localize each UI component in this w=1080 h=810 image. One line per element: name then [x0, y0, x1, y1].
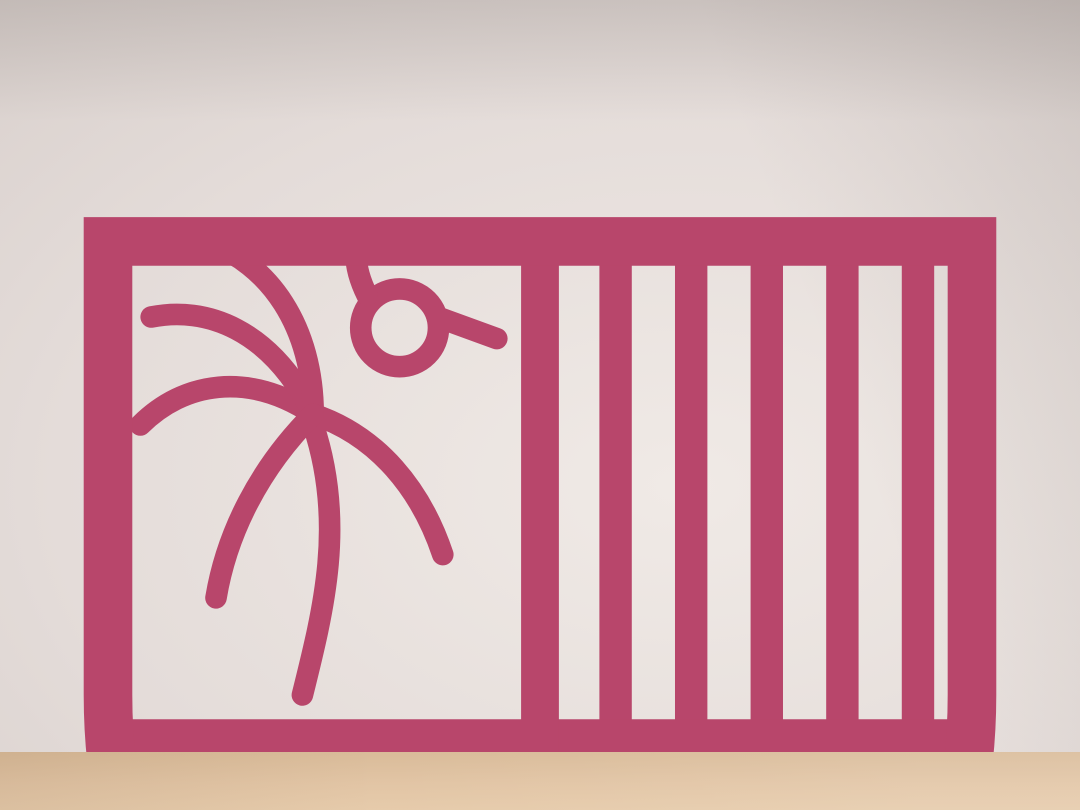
palm-tree-and-bird-icon [140, 198, 496, 695]
brand-shield-icon [0, 155, 1080, 810]
baseboard [0, 732, 1080, 752]
room-scene: Premium Travel Art 5' 4" 162 cm 2:3 rati… [0, 0, 1080, 810]
wood-floor-lighting [0, 752, 1080, 810]
wood-floor-plank-seams [0, 0, 300, 150]
